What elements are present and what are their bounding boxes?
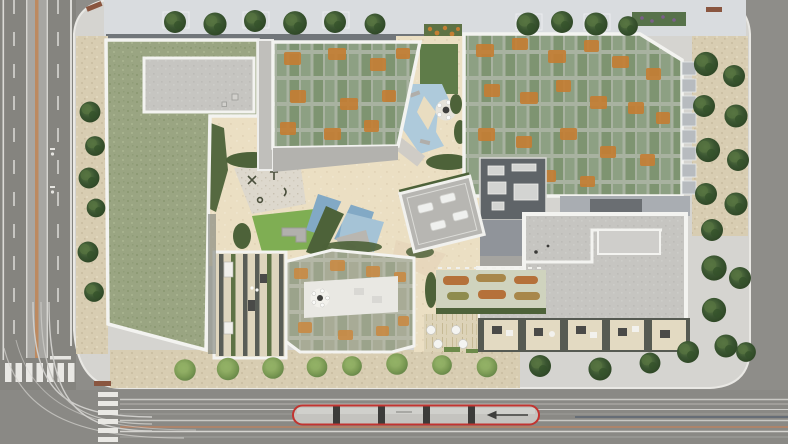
terrace-planter-1 bbox=[444, 347, 460, 352]
terrace-round-table-set bbox=[311, 289, 330, 308]
roof-hatch-2 bbox=[222, 102, 227, 107]
roof-hatch bbox=[232, 94, 238, 100]
west-gravel-strip bbox=[76, 36, 108, 354]
terrace-planter-2 bbox=[466, 349, 478, 353]
edge-line-right bbox=[70, 0, 72, 346]
west-block-concrete-roof bbox=[144, 58, 254, 112]
southeast-block-raised-roof bbox=[598, 230, 660, 254]
community-garden bbox=[436, 268, 546, 314]
bench-top-right bbox=[706, 7, 722, 12]
terrace-object-2 bbox=[372, 296, 382, 303]
patio-row bbox=[478, 318, 690, 352]
terrace-object-1 bbox=[354, 288, 364, 295]
block-gap-shadow bbox=[208, 214, 216, 354]
median-line-west bbox=[26, 0, 27, 358]
edge-line-left bbox=[3, 0, 5, 360]
cafe-terrace bbox=[424, 314, 478, 353]
building-link-wing bbox=[258, 40, 273, 170]
garden-hedge bbox=[436, 308, 546, 314]
roof-drain-1 bbox=[534, 250, 538, 254]
roof-drain-2 bbox=[547, 245, 550, 248]
patios bbox=[484, 320, 686, 350]
bench-crosswalk bbox=[94, 381, 111, 386]
building-north-block bbox=[273, 42, 420, 172]
tram-roof-highlight bbox=[297, 408, 535, 414]
building-southwest-terrace bbox=[214, 252, 286, 358]
median-line-east bbox=[47, 0, 48, 358]
tram bbox=[293, 406, 539, 425]
site-plan-render bbox=[0, 0, 788, 444]
left-street bbox=[0, 0, 80, 444]
building-south-block bbox=[284, 250, 414, 352]
median-rust-stripe bbox=[35, 0, 39, 358]
purple-bloom-planter bbox=[632, 12, 686, 26]
east-block-dark-roof-box bbox=[590, 199, 642, 212]
aerial-rendering-canvas bbox=[0, 0, 788, 444]
